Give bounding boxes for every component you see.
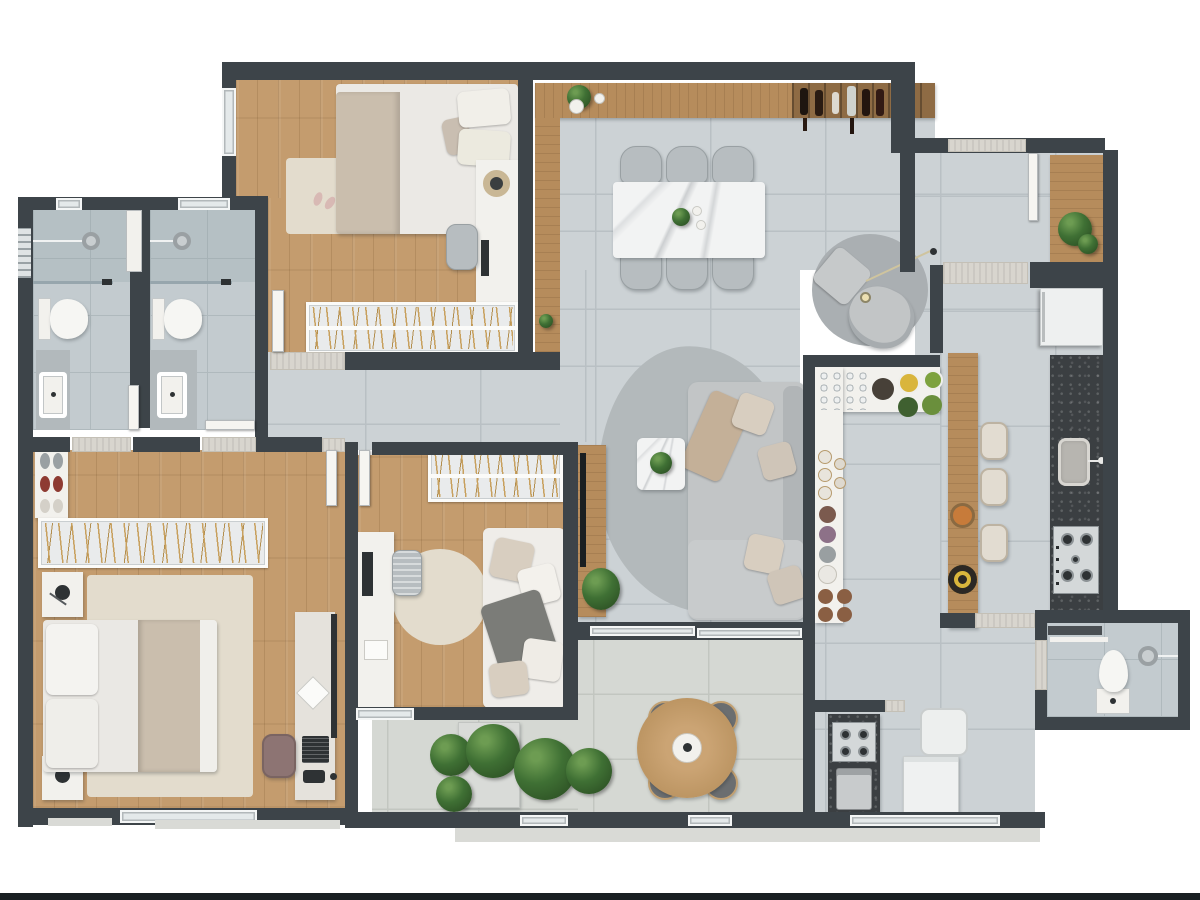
bedroom2-window bbox=[356, 708, 414, 720]
threshold-kitchen-service bbox=[975, 613, 1035, 628]
bathroom2-window bbox=[178, 198, 230, 210]
balcony-railing-glass bbox=[850, 815, 1000, 826]
threshold-bathroom3 bbox=[1035, 640, 1047, 690]
bottom-bar bbox=[0, 893, 1200, 900]
bathroom1-window bbox=[56, 198, 82, 210]
balcony-railing-glass bbox=[520, 815, 568, 826]
sliding-glass-door bbox=[590, 626, 695, 636]
bathroom2-door bbox=[205, 420, 255, 430]
threshold-entry-kitchen bbox=[943, 262, 1028, 284]
threshold-bedroom1 bbox=[270, 352, 345, 370]
exterior-sill bbox=[48, 818, 112, 826]
threshold-bathroom2 bbox=[202, 437, 256, 452]
exterior-ledge bbox=[455, 828, 1040, 842]
threshold-bathroom1 bbox=[72, 437, 131, 452]
sliding-glass-door bbox=[697, 628, 802, 638]
entrance-door bbox=[1028, 153, 1038, 221]
master-door bbox=[326, 450, 337, 506]
floor-plan-canvas bbox=[0, 0, 1200, 900]
bedroom1-window bbox=[222, 88, 236, 156]
balcony-railing-glass bbox=[688, 815, 732, 826]
openings-layer bbox=[0, 0, 1200, 900]
bedroom1-door bbox=[272, 290, 284, 352]
bathroom1-door bbox=[128, 385, 139, 430]
duct-shaft bbox=[126, 210, 142, 272]
bedroom2-door bbox=[359, 450, 370, 506]
vent-louver bbox=[18, 228, 31, 278]
threshold-bbq bbox=[885, 700, 905, 712]
exterior-sill bbox=[155, 820, 340, 829]
threshold-entrance bbox=[948, 139, 1026, 152]
